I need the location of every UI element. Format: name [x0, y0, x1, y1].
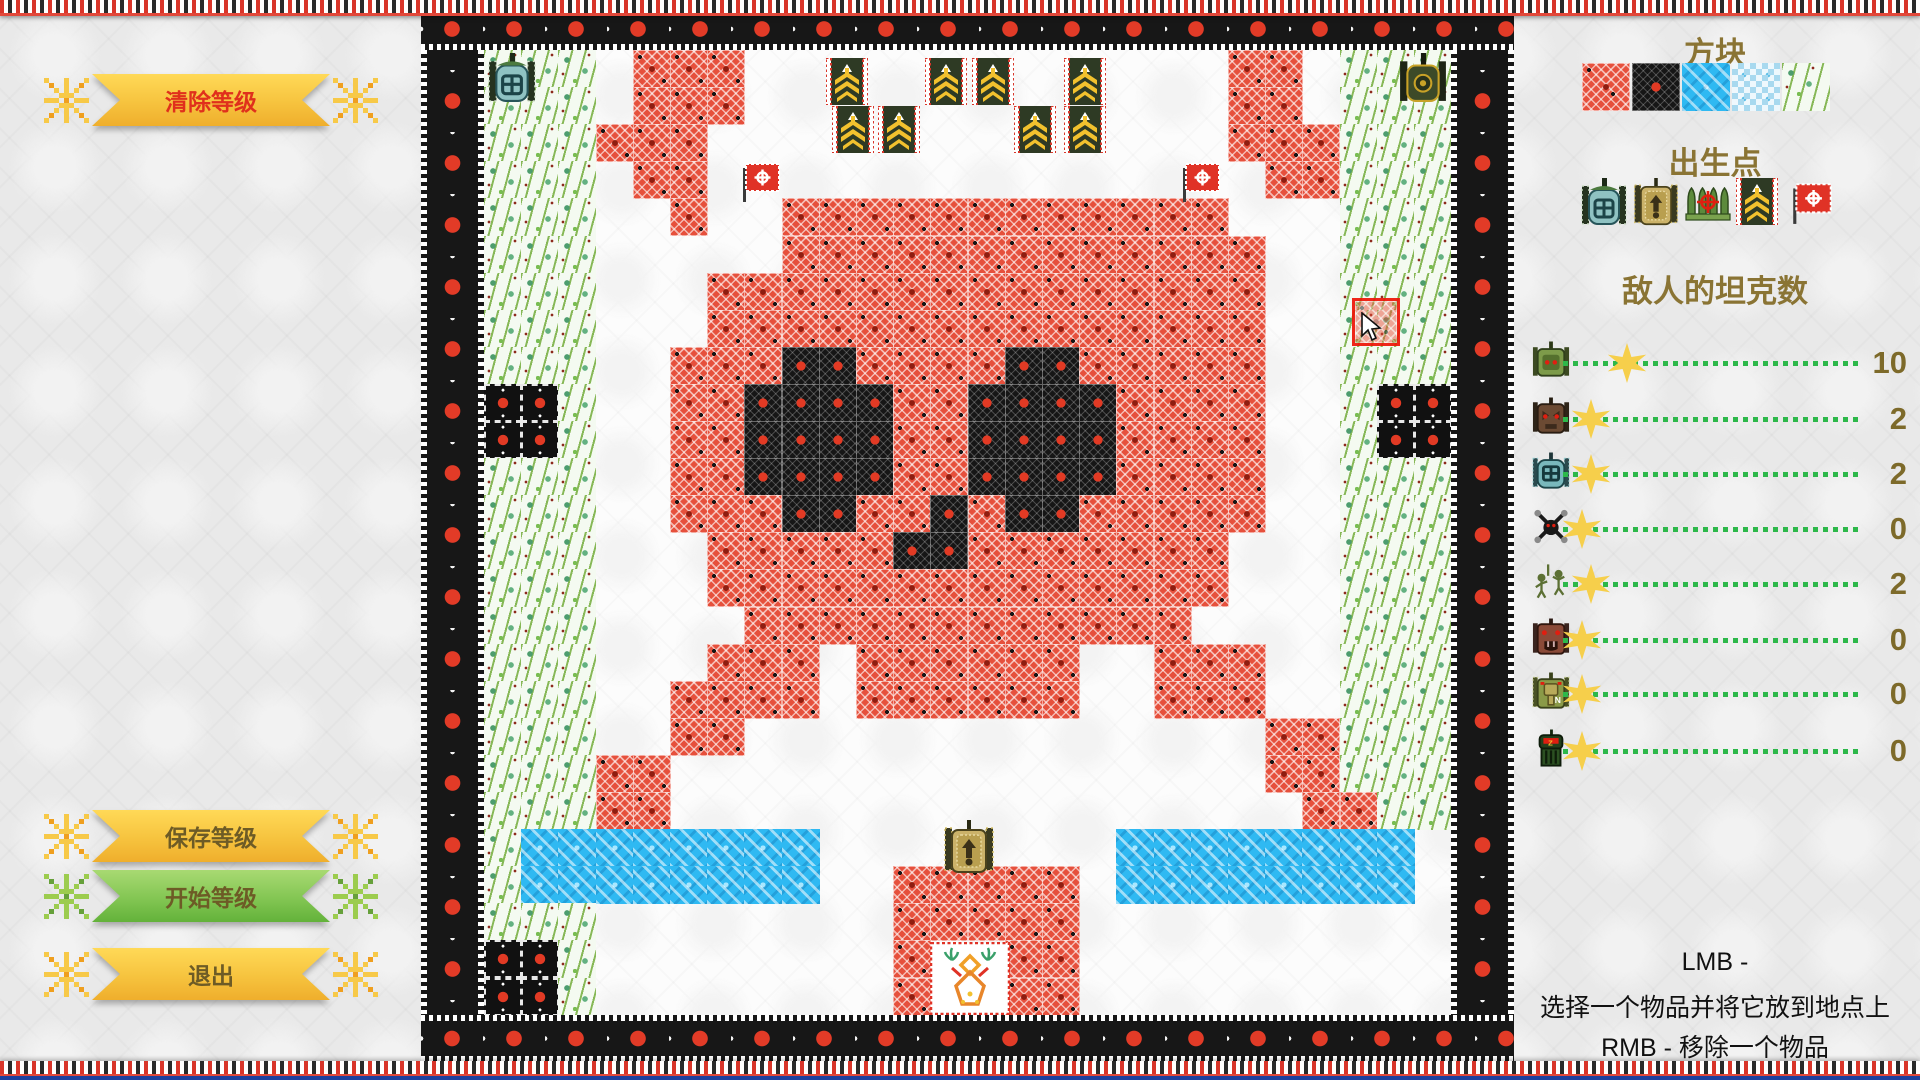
tile-brick[interactable] [819, 569, 857, 607]
tile-trees[interactable] [484, 718, 522, 756]
tile-brick[interactable] [670, 347, 708, 385]
tile-brick[interactable] [707, 495, 745, 533]
tile-brick[interactable] [930, 310, 968, 348]
tile-brick[interactable] [1005, 532, 1043, 570]
spawn-item-shells[interactable] [1684, 178, 1732, 231]
tile-trees[interactable] [484, 681, 522, 719]
map-sprite-banner[interactable] [878, 106, 920, 158]
tile-water[interactable] [1154, 866, 1192, 904]
tile-water[interactable] [1377, 866, 1415, 904]
tile-brick[interactable] [1340, 792, 1378, 830]
tile-steel[interactable] [484, 384, 522, 422]
tile-brick[interactable] [707, 569, 745, 607]
tile-trees[interactable] [521, 681, 559, 719]
tile-trees[interactable] [1340, 50, 1378, 88]
tile-brick[interactable] [707, 458, 745, 496]
tile-trees[interactable] [1377, 607, 1415, 645]
tile-trees[interactable] [484, 161, 522, 199]
tile-brick[interactable] [1042, 940, 1080, 978]
tile-trees[interactable] [558, 273, 596, 311]
tile-brick[interactable] [1116, 607, 1154, 645]
tile-brick[interactable] [1228, 124, 1266, 162]
tile-dark-brick[interactable] [782, 384, 820, 422]
tile-dark-brick[interactable] [1005, 421, 1043, 459]
tile-brick[interactable] [856, 644, 894, 682]
tile-brick[interactable] [1079, 198, 1117, 236]
tile-brick[interactable] [893, 681, 931, 719]
tile-brick[interactable] [968, 347, 1006, 385]
tile-trees[interactable] [1340, 755, 1378, 793]
tile-trees[interactable] [1340, 124, 1378, 162]
tile-brick[interactable] [1005, 866, 1043, 904]
tile-brick[interactable] [930, 458, 968, 496]
tile-brick[interactable] [596, 124, 634, 162]
tile-brick[interactable] [1265, 50, 1303, 88]
tile-steel[interactable] [521, 940, 559, 978]
tile-brick[interactable] [670, 681, 708, 719]
tile-brick[interactable] [1228, 87, 1266, 125]
tile-brick[interactable] [1265, 124, 1303, 162]
tile-brick[interactable] [930, 273, 968, 311]
tile-brick[interactable] [893, 495, 931, 533]
tile-brick[interactable] [856, 347, 894, 385]
tile-brick[interactable] [596, 792, 634, 830]
tile-brick[interactable] [1302, 161, 1340, 199]
tile-brick[interactable] [930, 347, 968, 385]
spawn-item-player-tank[interactable] [1580, 178, 1628, 231]
tile-trees[interactable] [1377, 569, 1415, 607]
tile-brick[interactable] [744, 644, 782, 682]
save-level-button[interactable]: 保存等级 [92, 810, 330, 862]
tile-trees[interactable] [521, 458, 559, 496]
tile-brick[interactable] [1191, 495, 1229, 533]
tile-brick[interactable] [1042, 273, 1080, 311]
tile-trees[interactable] [1340, 347, 1378, 385]
tile-brick[interactable] [968, 495, 1006, 533]
tile-brick[interactable] [819, 236, 857, 274]
tile-steel[interactable] [1377, 421, 1415, 459]
tile-dark-brick[interactable] [819, 458, 857, 496]
tile-trees[interactable] [558, 792, 596, 830]
tile-brick[interactable] [633, 50, 671, 88]
tile-water[interactable] [1116, 829, 1154, 867]
tile-dark-brick[interactable] [782, 347, 820, 385]
tile-water[interactable] [744, 829, 782, 867]
tile-brick[interactable] [1302, 755, 1340, 793]
tile-trees[interactable] [1377, 532, 1415, 570]
tile-dark-brick[interactable] [782, 458, 820, 496]
tile-brick[interactable] [1116, 532, 1154, 570]
slider-track[interactable] [1563, 361, 1863, 366]
tile-brick[interactable] [893, 458, 931, 496]
tile-dark-brick[interactable] [1042, 384, 1080, 422]
map-sprite-banner[interactable] [1014, 106, 1056, 158]
tile-brick[interactable] [930, 384, 968, 422]
tile-water[interactable] [1302, 866, 1340, 904]
tile-brick[interactable] [1265, 161, 1303, 199]
tile-brick[interactable] [819, 607, 857, 645]
tile-trees[interactable] [1377, 792, 1415, 830]
tile-dark-brick[interactable] [930, 495, 968, 533]
tile-brick[interactable] [1154, 347, 1192, 385]
tile-brick[interactable] [893, 978, 931, 1016]
tile-brick[interactable] [1042, 866, 1080, 904]
tile-brick[interactable] [930, 644, 968, 682]
slider-track[interactable] [1563, 472, 1863, 477]
tile-steel[interactable] [1414, 421, 1451, 459]
tile-water[interactable] [707, 866, 745, 904]
tile-dark-brick[interactable] [744, 384, 782, 422]
tile-brick[interactable] [930, 198, 968, 236]
tile-brick[interactable] [856, 198, 894, 236]
tile-brick[interactable] [633, 792, 671, 830]
tile-brick[interactable] [1191, 458, 1229, 496]
tile-brick[interactable] [930, 681, 968, 719]
map-sprite-banner[interactable] [1064, 106, 1106, 158]
exit-level-button[interactable]: 退出 [92, 948, 330, 1000]
tile-trees[interactable] [1377, 124, 1415, 162]
tile-brick[interactable] [670, 50, 708, 88]
tile-trees[interactable] [1377, 718, 1415, 756]
tile-brick[interactable] [968, 198, 1006, 236]
tile-trees[interactable] [484, 458, 522, 496]
tile-dark-brick[interactable] [856, 421, 894, 459]
tile-brick[interactable] [1116, 421, 1154, 459]
tile-trees[interactable] [484, 607, 522, 645]
tile-dark-brick[interactable] [1005, 458, 1043, 496]
tile-trees[interactable] [484, 347, 522, 385]
tile-brick[interactable] [1154, 569, 1192, 607]
tile-trees[interactable] [558, 50, 596, 88]
tile-brick[interactable] [1042, 978, 1080, 1016]
tile-water[interactable] [1340, 829, 1378, 867]
tile-brick[interactable] [670, 421, 708, 459]
tile-trees[interactable] [1414, 644, 1451, 682]
tile-brick[interactable] [930, 569, 968, 607]
tile-dark-brick[interactable] [1042, 495, 1080, 533]
tile-brick[interactable] [1191, 681, 1229, 719]
tile-brick[interactable] [1005, 236, 1043, 274]
tile-dark-brick[interactable] [1042, 421, 1080, 459]
tile-trees[interactable] [1377, 755, 1415, 793]
map-sprite-tank-player[interactable] [487, 53, 537, 108]
tile-brick[interactable] [1265, 87, 1303, 125]
tile-steel[interactable] [521, 421, 559, 459]
tile-brick[interactable] [1005, 569, 1043, 607]
tile-brick[interactable] [670, 161, 708, 199]
tile-trees[interactable] [1377, 161, 1415, 199]
tile-dark-brick[interactable] [1079, 421, 1117, 459]
tile-brick[interactable] [1191, 569, 1229, 607]
tile-brick[interactable] [1154, 607, 1192, 645]
tile-brick[interactable] [1154, 681, 1192, 719]
tile-trees[interactable] [1340, 569, 1378, 607]
tile-brick[interactable] [1265, 755, 1303, 793]
tile-brick[interactable] [744, 310, 782, 348]
tile-trees[interactable] [1414, 607, 1451, 645]
tile-brick[interactable] [670, 718, 708, 756]
tile-brick[interactable] [930, 421, 968, 459]
tile-water[interactable] [1116, 866, 1154, 904]
tile-water[interactable] [1340, 866, 1378, 904]
tile-brick[interactable] [1228, 384, 1266, 422]
tile-steel[interactable] [484, 978, 522, 1016]
tile-trees[interactable] [1414, 495, 1451, 533]
tile-trees[interactable] [1414, 755, 1451, 793]
tile-trees[interactable] [484, 236, 522, 274]
tile-trees[interactable] [484, 755, 522, 793]
tile-trees[interactable] [558, 940, 596, 978]
tile-brick[interactable] [968, 903, 1006, 941]
tile-brick[interactable] [893, 866, 931, 904]
tile-trees[interactable] [484, 903, 522, 941]
tile-brick[interactable] [1079, 607, 1117, 645]
tile-water[interactable] [633, 829, 671, 867]
tile-trees[interactable] [1414, 718, 1451, 756]
tile-brick[interactable] [744, 495, 782, 533]
tile-water[interactable] [1265, 866, 1303, 904]
tile-water[interactable] [521, 829, 559, 867]
tile-brick[interactable] [1191, 273, 1229, 311]
tile-steel[interactable] [484, 421, 522, 459]
tile-trees[interactable] [521, 236, 559, 274]
tile-brick[interactable] [856, 273, 894, 311]
tile-brick[interactable] [782, 236, 820, 274]
tile-brick[interactable] [1116, 495, 1154, 533]
tile-brick[interactable] [856, 310, 894, 348]
tile-trees[interactable] [558, 718, 596, 756]
tile-brick[interactable] [1302, 718, 1340, 756]
spawn-item-flag[interactable] [1788, 178, 1836, 231]
tile-brick[interactable] [856, 607, 894, 645]
palette-tile-trees[interactable] [1782, 63, 1830, 111]
tile-trees[interactable] [1414, 458, 1451, 496]
tile-trees[interactable] [521, 644, 559, 682]
tile-water[interactable] [1154, 829, 1192, 867]
tile-brick[interactable] [1005, 198, 1043, 236]
tile-brick[interactable] [707, 87, 745, 125]
tile-brick[interactable] [930, 607, 968, 645]
tile-trees[interactable] [1414, 532, 1451, 570]
tile-brick[interactable] [856, 569, 894, 607]
palette-tile-ice[interactable] [1732, 63, 1780, 111]
tile-water[interactable] [782, 866, 820, 904]
tile-brick[interactable] [1042, 644, 1080, 682]
tile-brick[interactable] [893, 273, 931, 311]
tile-trees[interactable] [1414, 273, 1451, 311]
tile-brick[interactable] [633, 87, 671, 125]
tile-brick[interactable] [1079, 236, 1117, 274]
tile-dark-brick[interactable] [819, 384, 857, 422]
tile-trees[interactable] [1414, 569, 1451, 607]
tile-brick[interactable] [1005, 978, 1043, 1016]
tile-trees[interactable] [484, 495, 522, 533]
tile-brick[interactable] [1191, 384, 1229, 422]
tile-brick[interactable] [670, 384, 708, 422]
tile-trees[interactable] [521, 792, 559, 830]
tile-dark-brick[interactable] [968, 458, 1006, 496]
tile-brick[interactable] [968, 236, 1006, 274]
tile-brick[interactable] [893, 903, 931, 941]
slider-track[interactable] [1563, 582, 1863, 587]
palette-tile-steel[interactable] [1632, 63, 1680, 111]
tile-brick[interactable] [1154, 644, 1192, 682]
tile-brick[interactable] [1079, 495, 1117, 533]
map-sprite-tank-dark[interactable] [1398, 53, 1448, 108]
tile-water[interactable] [596, 866, 634, 904]
map-sprite-flag[interactable] [1178, 158, 1224, 209]
tile-brick[interactable] [707, 50, 745, 88]
tile-water[interactable] [782, 829, 820, 867]
tile-trees[interactable] [1414, 310, 1451, 348]
tile-brick[interactable] [1228, 495, 1266, 533]
tile-brick[interactable] [707, 273, 745, 311]
tile-brick[interactable] [782, 569, 820, 607]
tile-brick[interactable] [1191, 347, 1229, 385]
tile-brick[interactable] [707, 421, 745, 459]
tile-trees[interactable] [521, 161, 559, 199]
tile-trees[interactable] [558, 161, 596, 199]
tile-brick[interactable] [1116, 273, 1154, 311]
tile-brick[interactable] [707, 384, 745, 422]
tile-brick[interactable] [1079, 310, 1117, 348]
tile-brick[interactable] [1116, 198, 1154, 236]
tile-brick[interactable] [1042, 532, 1080, 570]
tile-trees[interactable] [521, 124, 559, 162]
tile-brick[interactable] [1005, 310, 1043, 348]
tile-water[interactable] [1265, 829, 1303, 867]
tile-brick[interactable] [1005, 903, 1043, 941]
tile-brick[interactable] [707, 532, 745, 570]
tile-trees[interactable] [1414, 792, 1451, 830]
tile-brick[interactable] [1042, 569, 1080, 607]
tile-brick[interactable] [968, 644, 1006, 682]
tile-trees[interactable] [1340, 458, 1378, 496]
tile-trees[interactable] [521, 718, 559, 756]
tile-trees[interactable] [521, 198, 559, 236]
tile-brick[interactable] [968, 607, 1006, 645]
map-sprite-banner[interactable] [925, 58, 967, 110]
tile-dark-brick[interactable] [819, 421, 857, 459]
tile-trees[interactable] [484, 792, 522, 830]
slider-track[interactable] [1563, 749, 1863, 754]
tile-brick[interactable] [633, 161, 671, 199]
tile-brick[interactable] [893, 569, 931, 607]
tile-brick[interactable] [930, 903, 968, 941]
tile-dark-brick[interactable] [819, 495, 857, 533]
tile-trees[interactable] [558, 495, 596, 533]
tile-brick[interactable] [1228, 681, 1266, 719]
tile-trees[interactable] [1340, 607, 1378, 645]
tile-brick[interactable] [1005, 940, 1043, 978]
tile-brick[interactable] [1191, 644, 1229, 682]
tile-steel[interactable] [1414, 384, 1451, 422]
tile-trees[interactable] [484, 124, 522, 162]
tile-brick[interactable] [707, 644, 745, 682]
tile-brick[interactable] [893, 236, 931, 274]
tile-brick[interactable] [856, 495, 894, 533]
tile-brick[interactable] [782, 273, 820, 311]
tile-brick[interactable] [782, 198, 820, 236]
tile-trees[interactable] [1340, 495, 1378, 533]
tile-brick[interactable] [1079, 347, 1117, 385]
tile-water[interactable] [1191, 866, 1229, 904]
tile-trees[interactable] [558, 347, 596, 385]
tile-trees[interactable] [521, 903, 559, 941]
tile-trees[interactable] [521, 569, 559, 607]
tile-brick[interactable] [819, 198, 857, 236]
tile-brick[interactable] [1116, 310, 1154, 348]
tile-dark-brick[interactable] [856, 384, 894, 422]
tile-brick[interactable] [596, 755, 634, 793]
tile-water[interactable] [558, 829, 596, 867]
palette-tile-brick[interactable] [1582, 63, 1630, 111]
tile-trees[interactable] [558, 532, 596, 570]
tile-trees[interactable] [521, 273, 559, 311]
tile-trees[interactable] [521, 495, 559, 533]
tile-trees[interactable] [558, 458, 596, 496]
tile-brick[interactable] [1302, 124, 1340, 162]
tile-trees[interactable] [521, 532, 559, 570]
tile-water[interactable] [633, 866, 671, 904]
tile-brick[interactable] [670, 198, 708, 236]
tile-brick[interactable] [744, 347, 782, 385]
map-sprite-tank-gold[interactable] [942, 820, 996, 879]
tile-water[interactable] [744, 866, 782, 904]
tile-brick[interactable] [893, 607, 931, 645]
map-sprite-banner[interactable] [832, 106, 874, 158]
tile-brick[interactable] [1228, 421, 1266, 459]
tile-brick[interactable] [1154, 532, 1192, 570]
tile-trees[interactable] [1377, 644, 1415, 682]
tile-brick[interactable] [1079, 273, 1117, 311]
tile-brick[interactable] [893, 347, 931, 385]
tile-brick[interactable] [1042, 236, 1080, 274]
tile-brick[interactable] [1191, 532, 1229, 570]
tile-dark-brick[interactable] [1042, 458, 1080, 496]
tile-trees[interactable] [558, 421, 596, 459]
tile-water[interactable] [1228, 829, 1266, 867]
tile-brick[interactable] [1228, 458, 1266, 496]
tile-brick[interactable] [893, 421, 931, 459]
tile-trees[interactable] [1377, 681, 1415, 719]
tile-steel[interactable] [1377, 384, 1415, 422]
tile-brick[interactable] [1116, 569, 1154, 607]
tile-trees[interactable] [521, 310, 559, 348]
tile-trees[interactable] [1340, 421, 1378, 459]
tile-dark-brick[interactable] [968, 421, 1006, 459]
tile-dark-brick[interactable] [1042, 347, 1080, 385]
tile-brick[interactable] [707, 718, 745, 756]
tile-brick[interactable] [1154, 421, 1192, 459]
tile-brick[interactable] [1005, 681, 1043, 719]
tile-trees[interactable] [558, 755, 596, 793]
tile-trees[interactable] [1377, 236, 1415, 274]
map-sprite-banner[interactable] [1064, 58, 1106, 110]
tile-trees[interactable] [484, 532, 522, 570]
tile-trees[interactable] [1414, 681, 1451, 719]
map-sprite-banner[interactable] [826, 58, 868, 110]
tile-dark-brick[interactable] [1005, 384, 1043, 422]
tile-dark-brick[interactable] [744, 458, 782, 496]
tile-trees[interactable] [521, 347, 559, 385]
tile-brick[interactable] [1191, 310, 1229, 348]
tile-brick[interactable] [1228, 347, 1266, 385]
tile-water[interactable] [1377, 829, 1415, 867]
tile-trees[interactable] [1340, 236, 1378, 274]
tile-trees[interactable] [521, 607, 559, 645]
tile-water[interactable] [1302, 829, 1340, 867]
